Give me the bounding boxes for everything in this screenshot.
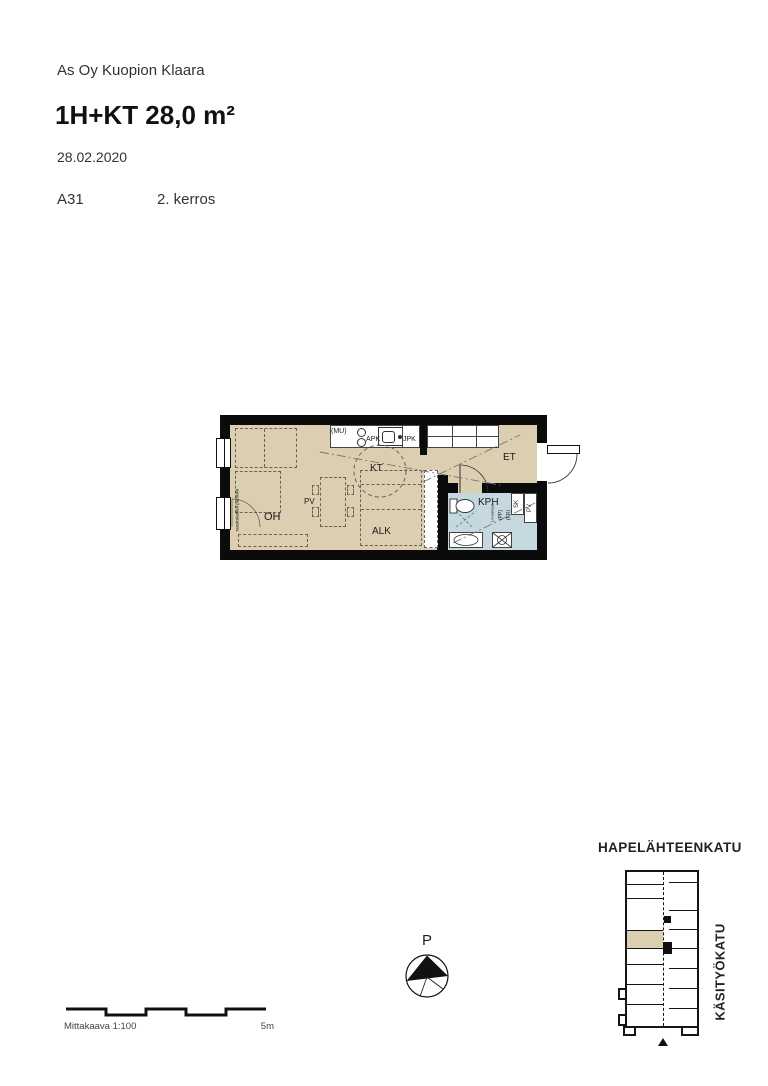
scale-caption: Mittakaava 1:100 bbox=[64, 1021, 136, 1032]
apartment-location-highlight bbox=[627, 931, 663, 948]
room-label-kph: KPH bbox=[478, 497, 499, 508]
site-map: HAPELÄHTEENKATU KÄSITYÖKATU bbox=[598, 840, 756, 1065]
shower-area-marks bbox=[456, 511, 476, 527]
north-label: P bbox=[398, 932, 456, 949]
label-mu: (MU) bbox=[331, 428, 347, 435]
building-foot bbox=[623, 1026, 636, 1036]
street-name-right: KÄSITYÖKATU bbox=[713, 923, 728, 1020]
room-label-oh: OH bbox=[264, 511, 281, 523]
scale-max-label: 5m bbox=[261, 1021, 274, 1032]
label-pp: (PP) bbox=[498, 510, 504, 520]
label-jpk: JPK bbox=[403, 436, 416, 443]
label-sk: SK bbox=[514, 500, 520, 508]
stair-core-marker bbox=[664, 916, 671, 923]
label-apk: APK bbox=[366, 436, 380, 443]
room-label-alk: ALK bbox=[372, 526, 391, 537]
balcony-protrusion bbox=[618, 988, 627, 1000]
scale-bar-icon bbox=[62, 1004, 274, 1020]
entrance-marker-icon bbox=[658, 1038, 668, 1046]
entry-door-arc bbox=[548, 454, 577, 483]
building-foot bbox=[681, 1026, 699, 1036]
scale-bar: Mittakaava 1:100 5m bbox=[62, 1004, 277, 1036]
room-label-kt: KT bbox=[370, 463, 383, 474]
label-french-balcony: ranskalainen parveke bbox=[235, 489, 240, 532]
compass: P bbox=[398, 932, 456, 998]
bathroom-door-arc bbox=[460, 465, 488, 493]
room-label-et: ET bbox=[503, 452, 516, 463]
building-outline bbox=[625, 870, 699, 1028]
apartment-number: A31 bbox=[57, 191, 84, 208]
label-kr: (KR) bbox=[506, 510, 512, 520]
plan-date: 28.02.2020 bbox=[57, 149, 127, 165]
floorplan-drawing: OH KT ET ALK KPH PV (MU) APK JPK SK PV (… bbox=[220, 415, 547, 560]
label-pv: PV bbox=[304, 497, 315, 506]
compass-icon bbox=[398, 950, 456, 998]
balcony-protrusion bbox=[618, 1014, 627, 1026]
label-lv-varaus: LV-varaus bbox=[490, 504, 495, 522]
apartment-type: 1H+KT 28,0 m² bbox=[55, 100, 235, 131]
project-title: As Oy Kuopion Klaara bbox=[57, 62, 205, 79]
washing-machine-icon bbox=[493, 533, 511, 547]
floor-number: 2. kerros bbox=[157, 191, 215, 208]
label-pk: PV bbox=[527, 504, 533, 512]
washbasin-icon bbox=[454, 535, 478, 546]
elevator-core-marker bbox=[663, 942, 672, 954]
toilet-icon bbox=[450, 499, 474, 513]
floorplan-page: As Oy Kuopion Klaara 1H+KT 28,0 m² 28.02… bbox=[0, 0, 768, 1086]
street-name-top: HAPELÄHTEENKATU bbox=[598, 840, 742, 855]
